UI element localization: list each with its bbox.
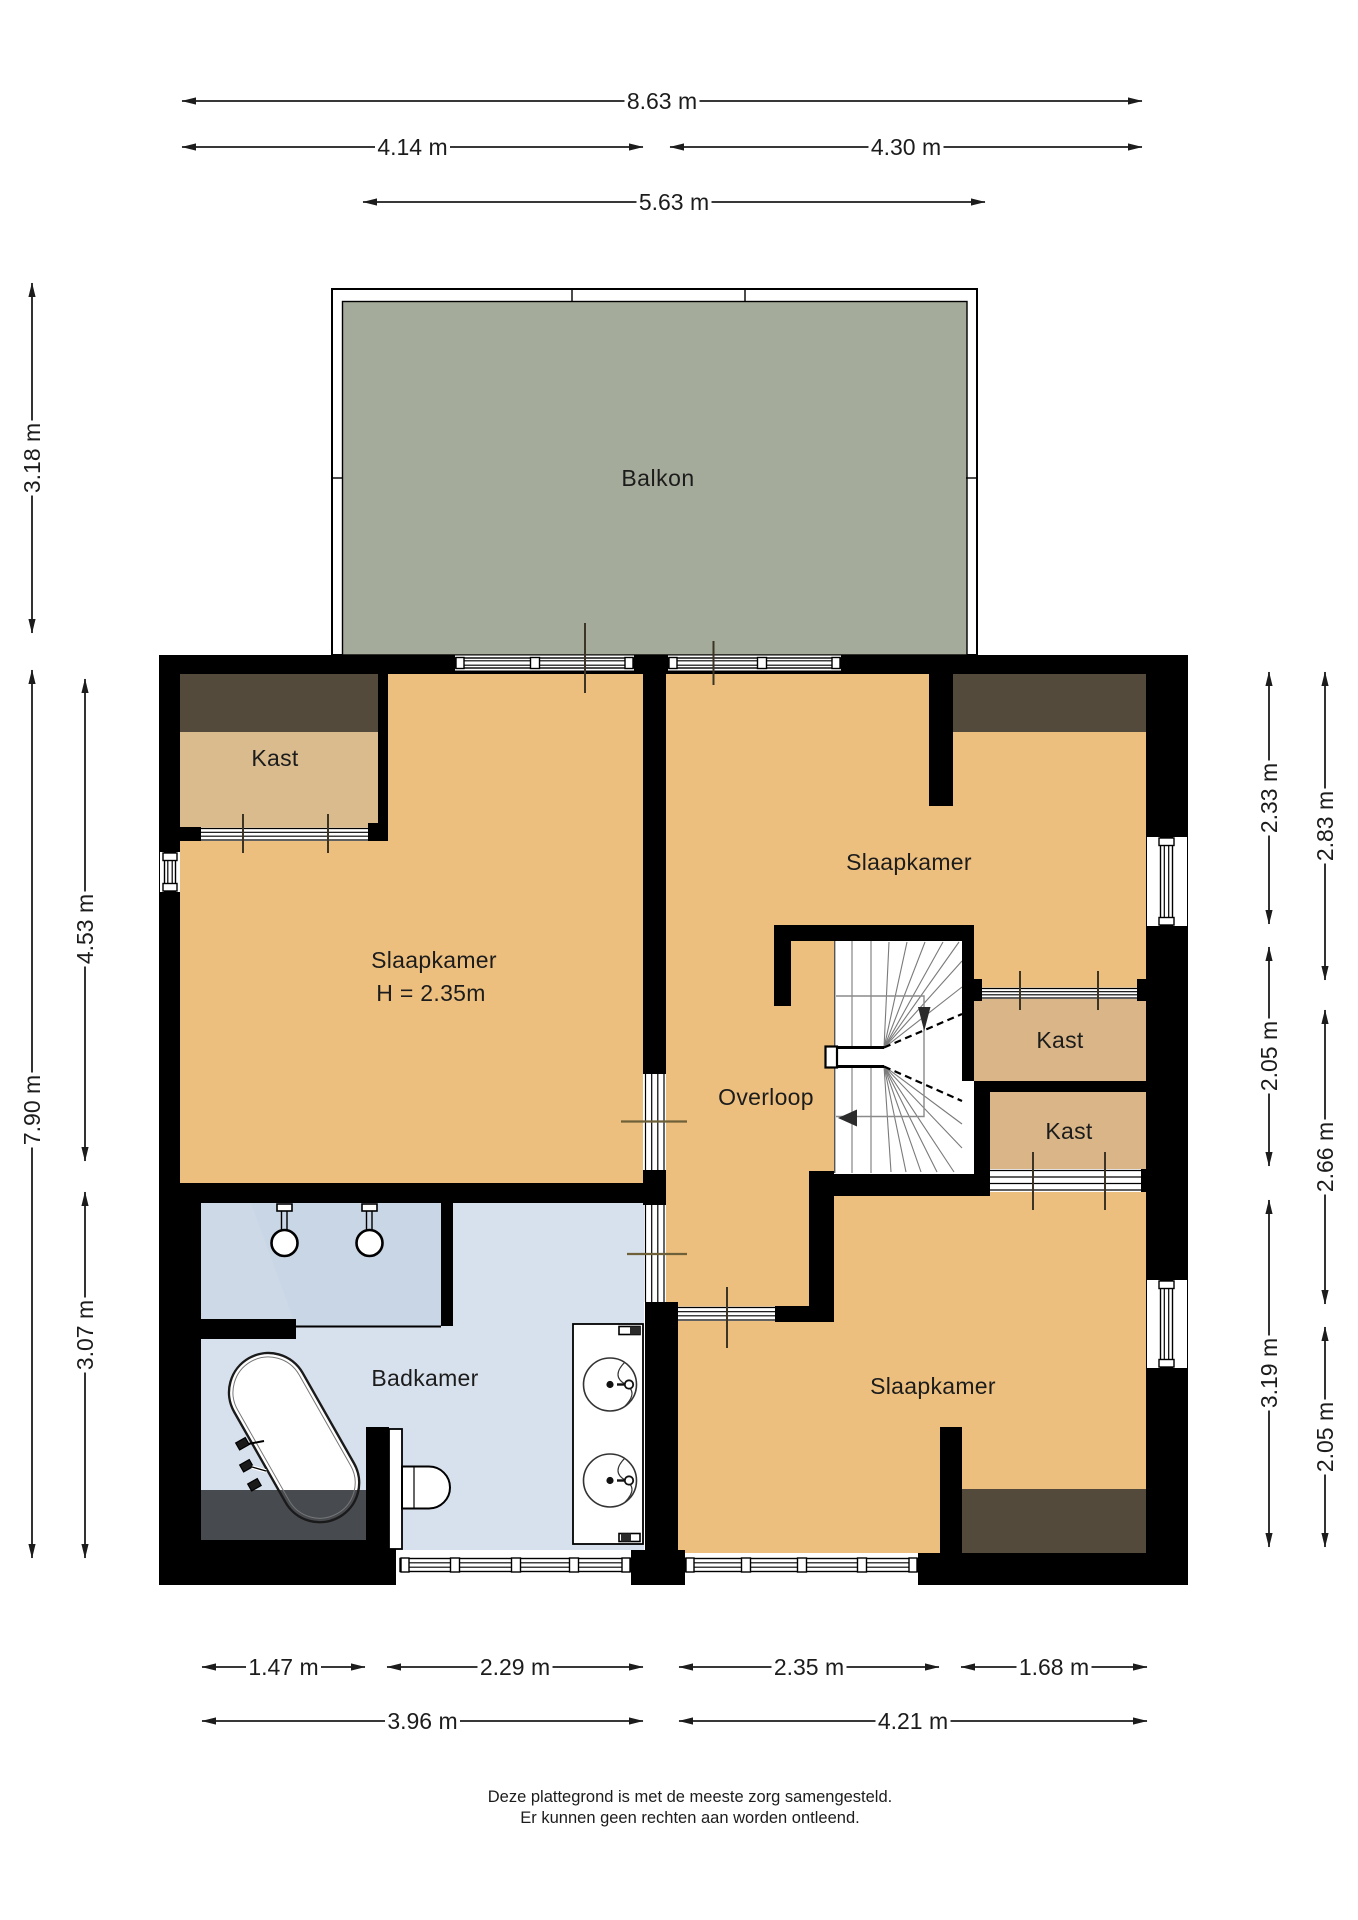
- svg-text:3.19 m: 3.19 m: [1256, 1338, 1282, 1408]
- svg-text:7.90 m: 7.90 m: [19, 1075, 45, 1145]
- svg-text:Kast: Kast: [1045, 1118, 1093, 1144]
- svg-text:H = 2.35m: H = 2.35m: [376, 980, 485, 1006]
- svg-text:4.21 m: 4.21 m: [878, 1708, 948, 1734]
- svg-text:5.63 m: 5.63 m: [639, 189, 709, 215]
- svg-text:3.96 m: 3.96 m: [387, 1708, 457, 1734]
- svg-text:2.05 m: 2.05 m: [1256, 1021, 1282, 1091]
- svg-text:Overloop: Overloop: [718, 1084, 814, 1110]
- svg-text:4.53 m: 4.53 m: [72, 894, 98, 964]
- svg-text:Kast: Kast: [251, 745, 299, 771]
- svg-text:8.63 m: 8.63 m: [627, 88, 697, 114]
- svg-text:Slaapkamer: Slaapkamer: [870, 1373, 996, 1399]
- svg-text:2.35 m: 2.35 m: [774, 1654, 844, 1680]
- svg-text:Badkamer: Badkamer: [371, 1365, 478, 1391]
- svg-text:2.66 m: 2.66 m: [1312, 1122, 1338, 1192]
- svg-text:Kast: Kast: [1036, 1027, 1084, 1053]
- svg-text:Slaapkamer: Slaapkamer: [846, 849, 972, 875]
- svg-text:4.14 m: 4.14 m: [377, 134, 447, 160]
- svg-text:2.05 m: 2.05 m: [1312, 1402, 1338, 1472]
- svg-text:2.33 m: 2.33 m: [1256, 763, 1282, 833]
- svg-text:Slaapkamer: Slaapkamer: [371, 947, 497, 973]
- svg-text:4.30 m: 4.30 m: [871, 134, 941, 160]
- svg-text:Deze plattegrond is met de mee: Deze plattegrond is met de meeste zorg s…: [488, 1788, 892, 1806]
- svg-text:Balkon: Balkon: [621, 465, 694, 491]
- svg-text:2.29 m: 2.29 m: [480, 1654, 550, 1680]
- svg-text:Er kunnen geen rechten aan wor: Er kunnen geen rechten aan worden ontlee…: [520, 1809, 859, 1827]
- svg-text:3.07 m: 3.07 m: [72, 1300, 98, 1370]
- svg-text:3.18 m: 3.18 m: [19, 423, 45, 493]
- svg-text:1.68 m: 1.68 m: [1019, 1654, 1089, 1680]
- svg-text:1.47 m: 1.47 m: [248, 1654, 318, 1680]
- svg-text:2.83 m: 2.83 m: [1312, 791, 1338, 861]
